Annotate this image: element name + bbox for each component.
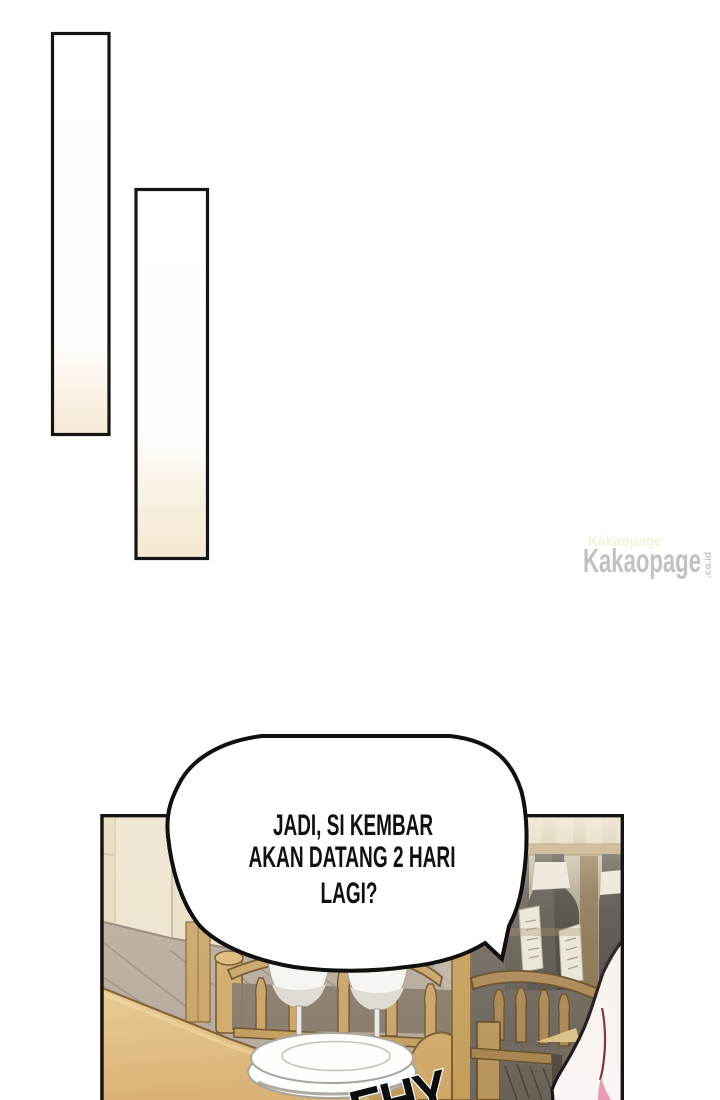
svg-text:Kakaopage: Kakaopage bbox=[583, 542, 701, 579]
svg-text:LAGI?: LAGI? bbox=[321, 877, 378, 910]
svg-text:JADI, SI KEMBAR: JADI, SI KEMBAR bbox=[273, 809, 433, 842]
svg-text:.co.id: .co.id bbox=[703, 552, 714, 578]
svg-text:AKAN DATANG 2 HARI: AKAN DATANG 2 HARI bbox=[249, 841, 456, 874]
